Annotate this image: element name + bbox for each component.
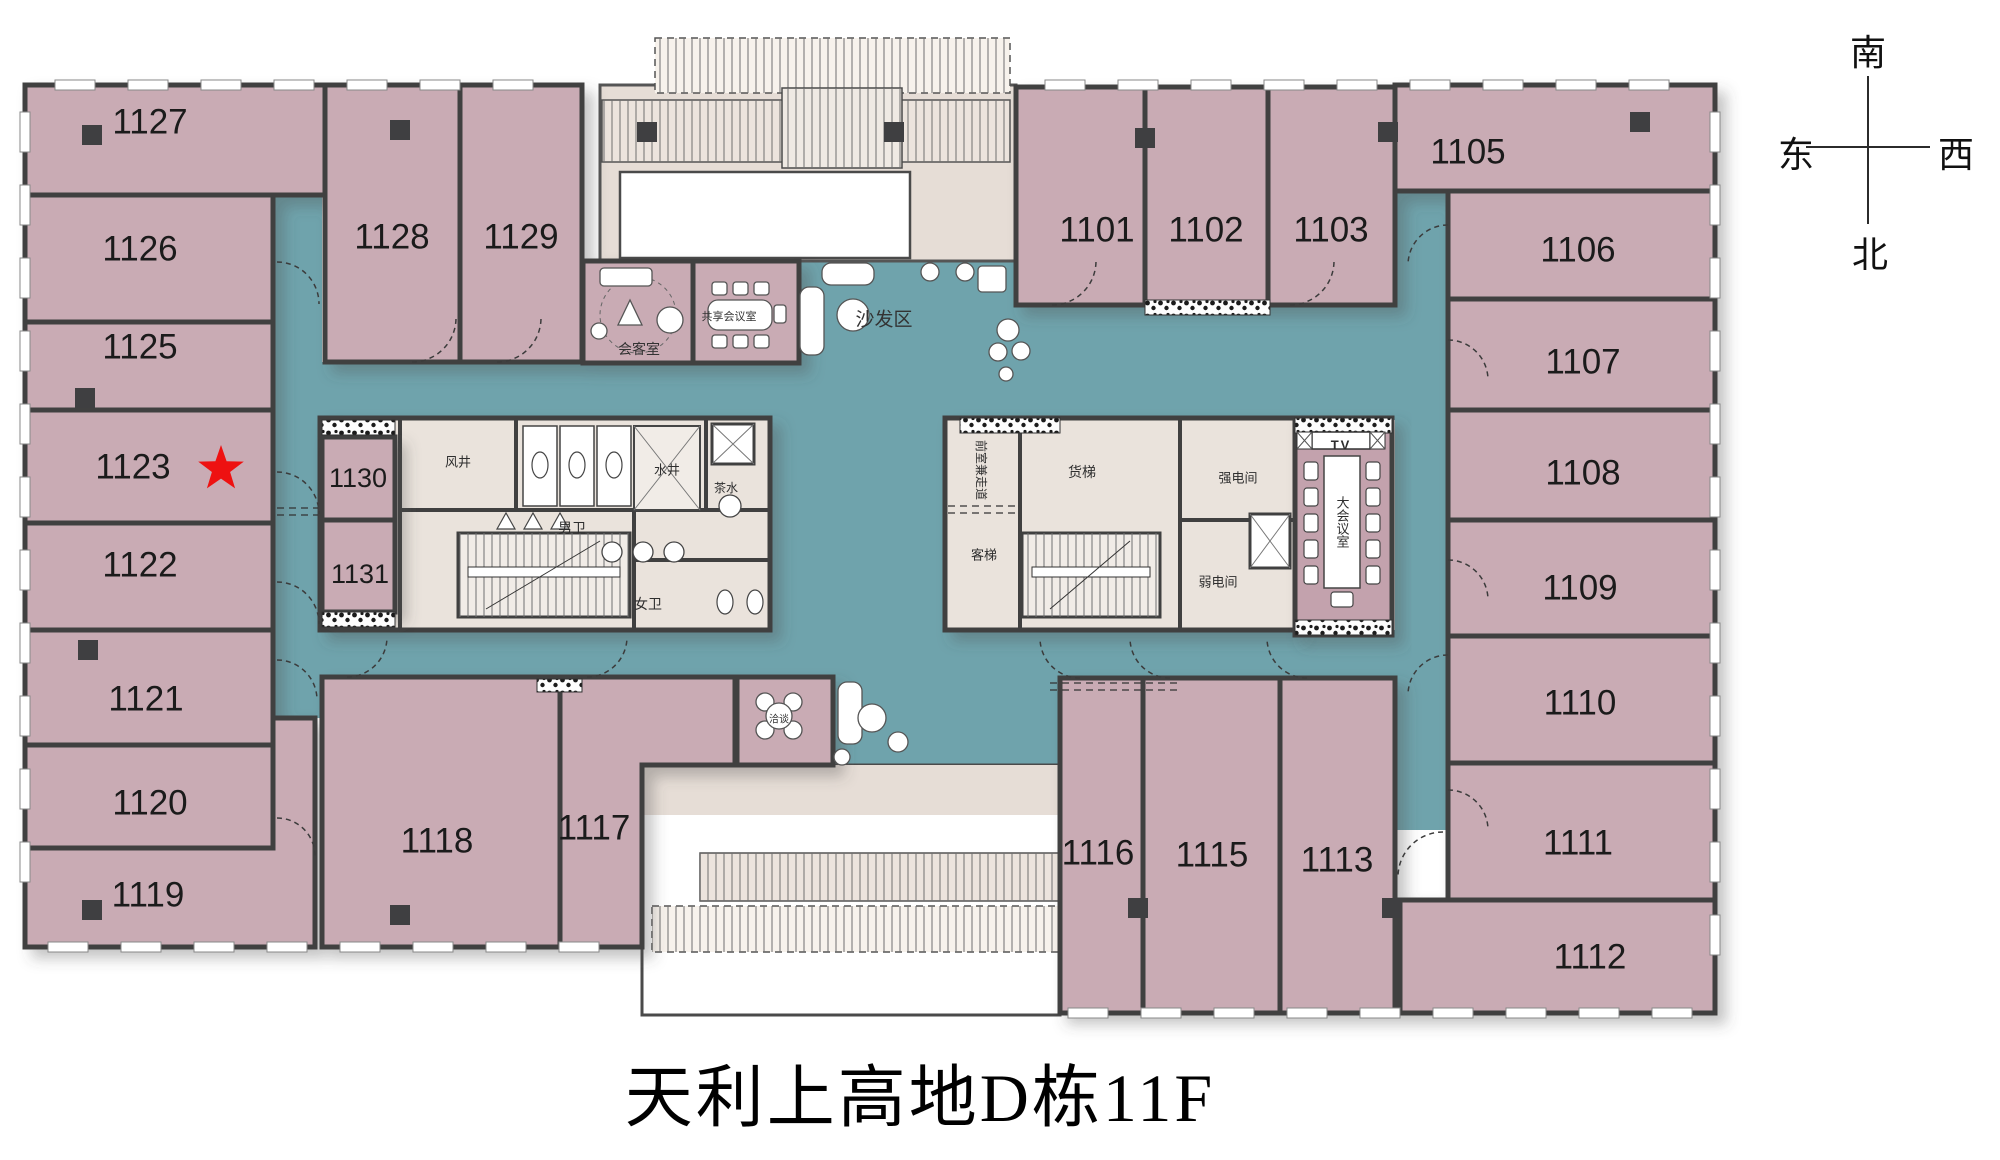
room-label-1122: 1122 <box>102 546 177 585</box>
core-label: 大会议室 <box>1335 496 1350 548</box>
core-label: 客梯 <box>971 548 997 563</box>
room-label-1131: 1131 <box>331 559 389 589</box>
room-label-1125: 1125 <box>102 328 177 367</box>
room-label-1106: 1106 <box>1540 231 1615 270</box>
core-label: 强电间 <box>1218 471 1257 486</box>
room-label-1121: 1121 <box>108 680 183 719</box>
core-label: 女卫 <box>634 596 662 612</box>
room-label-1110: 1110 <box>1544 684 1617 723</box>
room-label-1117: 1117 <box>558 809 631 848</box>
floor-plan-page: 1127112611251123112211211120111911281129… <box>0 0 2000 1160</box>
room-label-1105: 1105 <box>1430 133 1505 172</box>
area-label: 沙发区 <box>855 309 912 331</box>
room-label-1130: 1130 <box>329 463 387 493</box>
room-label-1108: 1108 <box>1545 454 1620 493</box>
compass-vertical-line <box>1867 76 1869 224</box>
compass-west-label: 西 <box>1938 126 1974 178</box>
floor-plan: 1127112611251123112211211120111911281129… <box>0 0 2000 1160</box>
compass-east-label: 东 <box>1778 126 1814 178</box>
room-1103 <box>1268 87 1395 305</box>
core-label: 货梯 <box>1068 464 1096 480</box>
room-label-1118: 1118 <box>401 822 474 861</box>
area-label: 共享会议室 <box>702 309 757 323</box>
core-label: 水井 <box>654 463 680 478</box>
room-label-1111: 1111 <box>1543 824 1613 863</box>
room-label-1120: 1120 <box>112 784 187 823</box>
area-label: 会客室 <box>618 341 660 357</box>
room-label-1123: 1123 <box>95 448 170 487</box>
room-label-1126: 1126 <box>102 230 177 269</box>
room-label-1127: 1127 <box>112 103 187 142</box>
room-label-1113: 1113 <box>1301 841 1374 880</box>
room-label-1109: 1109 <box>1542 569 1617 608</box>
compass-south-label: 南 <box>1850 24 1886 76</box>
floor-plan-title: 天利上高地D栋11F <box>420 1042 1420 1141</box>
room-label-1115: 1115 <box>1176 836 1249 875</box>
room-label-1112: 1112 <box>1554 938 1627 977</box>
room-1118 <box>322 677 560 947</box>
core-label: 风井 <box>445 455 471 470</box>
room-label-1101: 1101 <box>1059 211 1134 250</box>
core-label: 前室兼走道 <box>974 440 989 500</box>
room-label-1129: 1129 <box>483 218 558 257</box>
room-label-1103: 1103 <box>1293 211 1368 250</box>
core-label: 弱电间 <box>1198 575 1237 590</box>
core-label: TV <box>1331 438 1352 453</box>
room-label-1102: 1102 <box>1168 211 1243 250</box>
room-label-1116: 1116 <box>1062 834 1135 873</box>
compass-north-label: 北 <box>1852 226 1888 278</box>
room-1102 <box>1145 87 1268 305</box>
core-label: 茶水 <box>714 480 738 495</box>
room-label-1119: 1119 <box>112 876 185 915</box>
compass: 南 东 西 北 <box>1750 14 1990 264</box>
core-label: 男卫 <box>558 520 586 536</box>
area-label: 洽谈 <box>769 713 789 726</box>
room-1101 <box>1016 87 1145 305</box>
room-label-1128: 1128 <box>354 218 429 257</box>
room-label-1107: 1107 <box>1545 343 1620 382</box>
